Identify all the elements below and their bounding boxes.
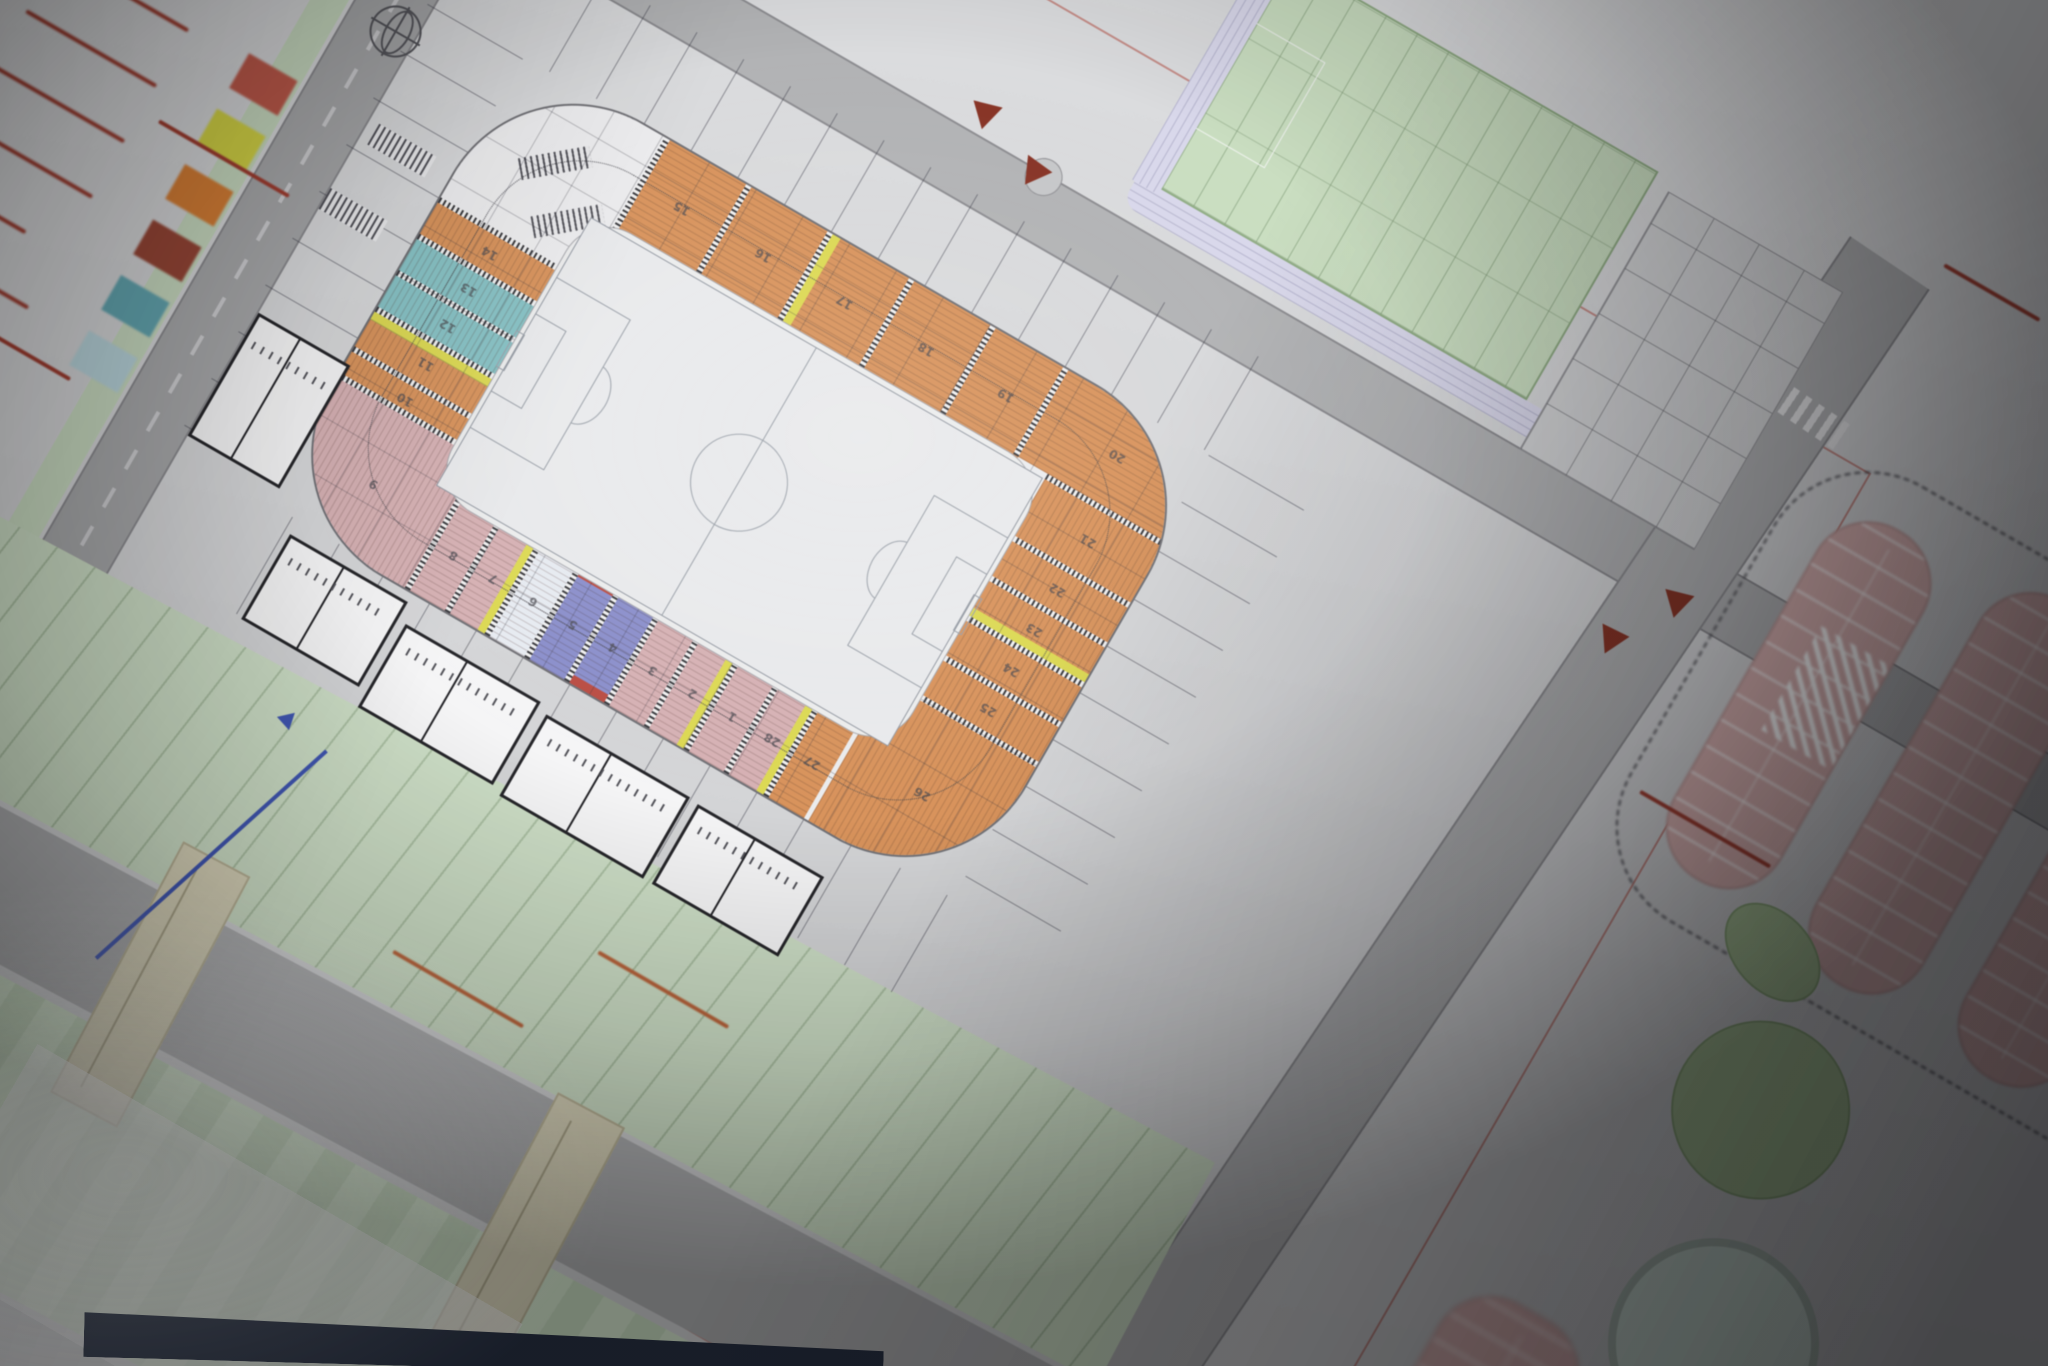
annotation-north-east: [1947, 260, 2048, 320]
legend-swatch-maroon: [133, 219, 201, 282]
legend-swatch-orange: [165, 164, 233, 227]
legend-swatch-lightblue: [69, 330, 137, 393]
legend-swatch-teal: [101, 275, 169, 338]
center-circle: [672, 416, 806, 550]
photo-of-stadium-masterplan: 14 13 12 11 10 9 15 16 17 18 19 20 21 22…: [0, 0, 2048, 1366]
pond: [1569, 1200, 1857, 1366]
printed-plan-sheet: 14 13 12 11 10 9 15 16 17 18 19 20 21 22…: [0, 0, 2048, 1366]
site-plan: 14 13 12 11 10 9 15 16 17 18 19 20 21 22…: [0, 0, 2048, 1366]
green-circle-lawn: [1638, 988, 1883, 1233]
